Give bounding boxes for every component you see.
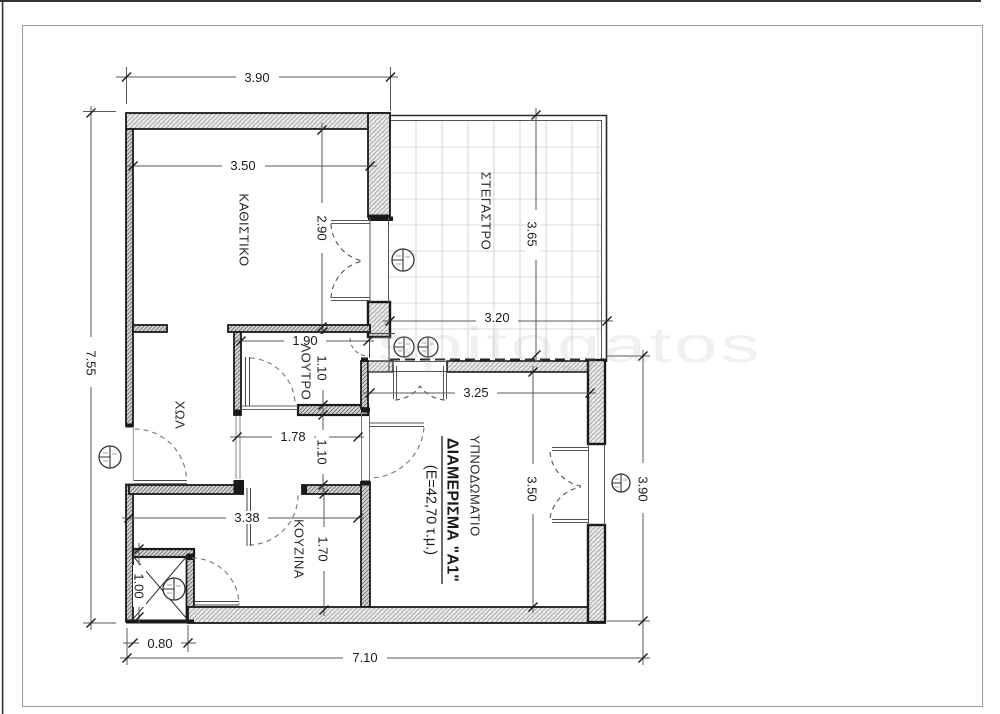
svg-text:ΥΠΝΟΔΩΜΑΤΙΟ: ΥΠΝΟΔΩΜΑΤΙΟ xyxy=(468,435,483,536)
svg-text:1.10: 1.10 xyxy=(315,439,330,464)
svg-text:3.65: 3.65 xyxy=(525,221,540,246)
svg-text:ΔΙΑΜΕΡΙΣΜΑ "Α1": ΔΙΑΜΕΡΙΣΜΑ "Α1" xyxy=(444,438,461,582)
svg-text:7.55: 7.55 xyxy=(84,350,99,375)
svg-text:3.50: 3.50 xyxy=(525,476,540,501)
svg-text:1.00: 1.00 xyxy=(132,573,147,598)
svg-text:2.90: 2.90 xyxy=(315,215,330,240)
svg-text:1.78: 1.78 xyxy=(280,429,305,444)
svg-text:3.50: 3.50 xyxy=(230,158,255,173)
svg-text:7.10: 7.10 xyxy=(352,650,377,665)
svg-text:spitogatos: spitogatos xyxy=(378,317,763,373)
svg-text:ΧΩΛ: ΧΩΛ xyxy=(173,401,188,430)
svg-text:(Ε=42,70 τ.μ.): (Ε=42,70 τ.μ.) xyxy=(423,465,439,555)
svg-text:ΚΑΘΙΣΤΙΚΟ: ΚΑΘΙΣΤΙΚΟ xyxy=(237,193,252,266)
svg-text:ΚΟΥΖΙΝΑ: ΚΟΥΖΙΝΑ xyxy=(292,519,307,579)
svg-text:ΣΤΕΓΑΣΤΡΟ: ΣΤΕΓΑΣΤΡΟ xyxy=(479,172,494,251)
svg-text:ΛΟΥΤΡΟ: ΛΟΥΤΡΟ xyxy=(299,344,314,401)
svg-text:3.90: 3.90 xyxy=(244,70,269,85)
svg-text:0.80: 0.80 xyxy=(147,636,172,651)
svg-text:3.38: 3.38 xyxy=(234,510,259,525)
svg-text:3.25: 3.25 xyxy=(463,385,488,400)
svg-text:3.90: 3.90 xyxy=(636,476,651,501)
svg-text:1.10: 1.10 xyxy=(315,355,330,380)
svg-text:1.70: 1.70 xyxy=(316,536,331,561)
